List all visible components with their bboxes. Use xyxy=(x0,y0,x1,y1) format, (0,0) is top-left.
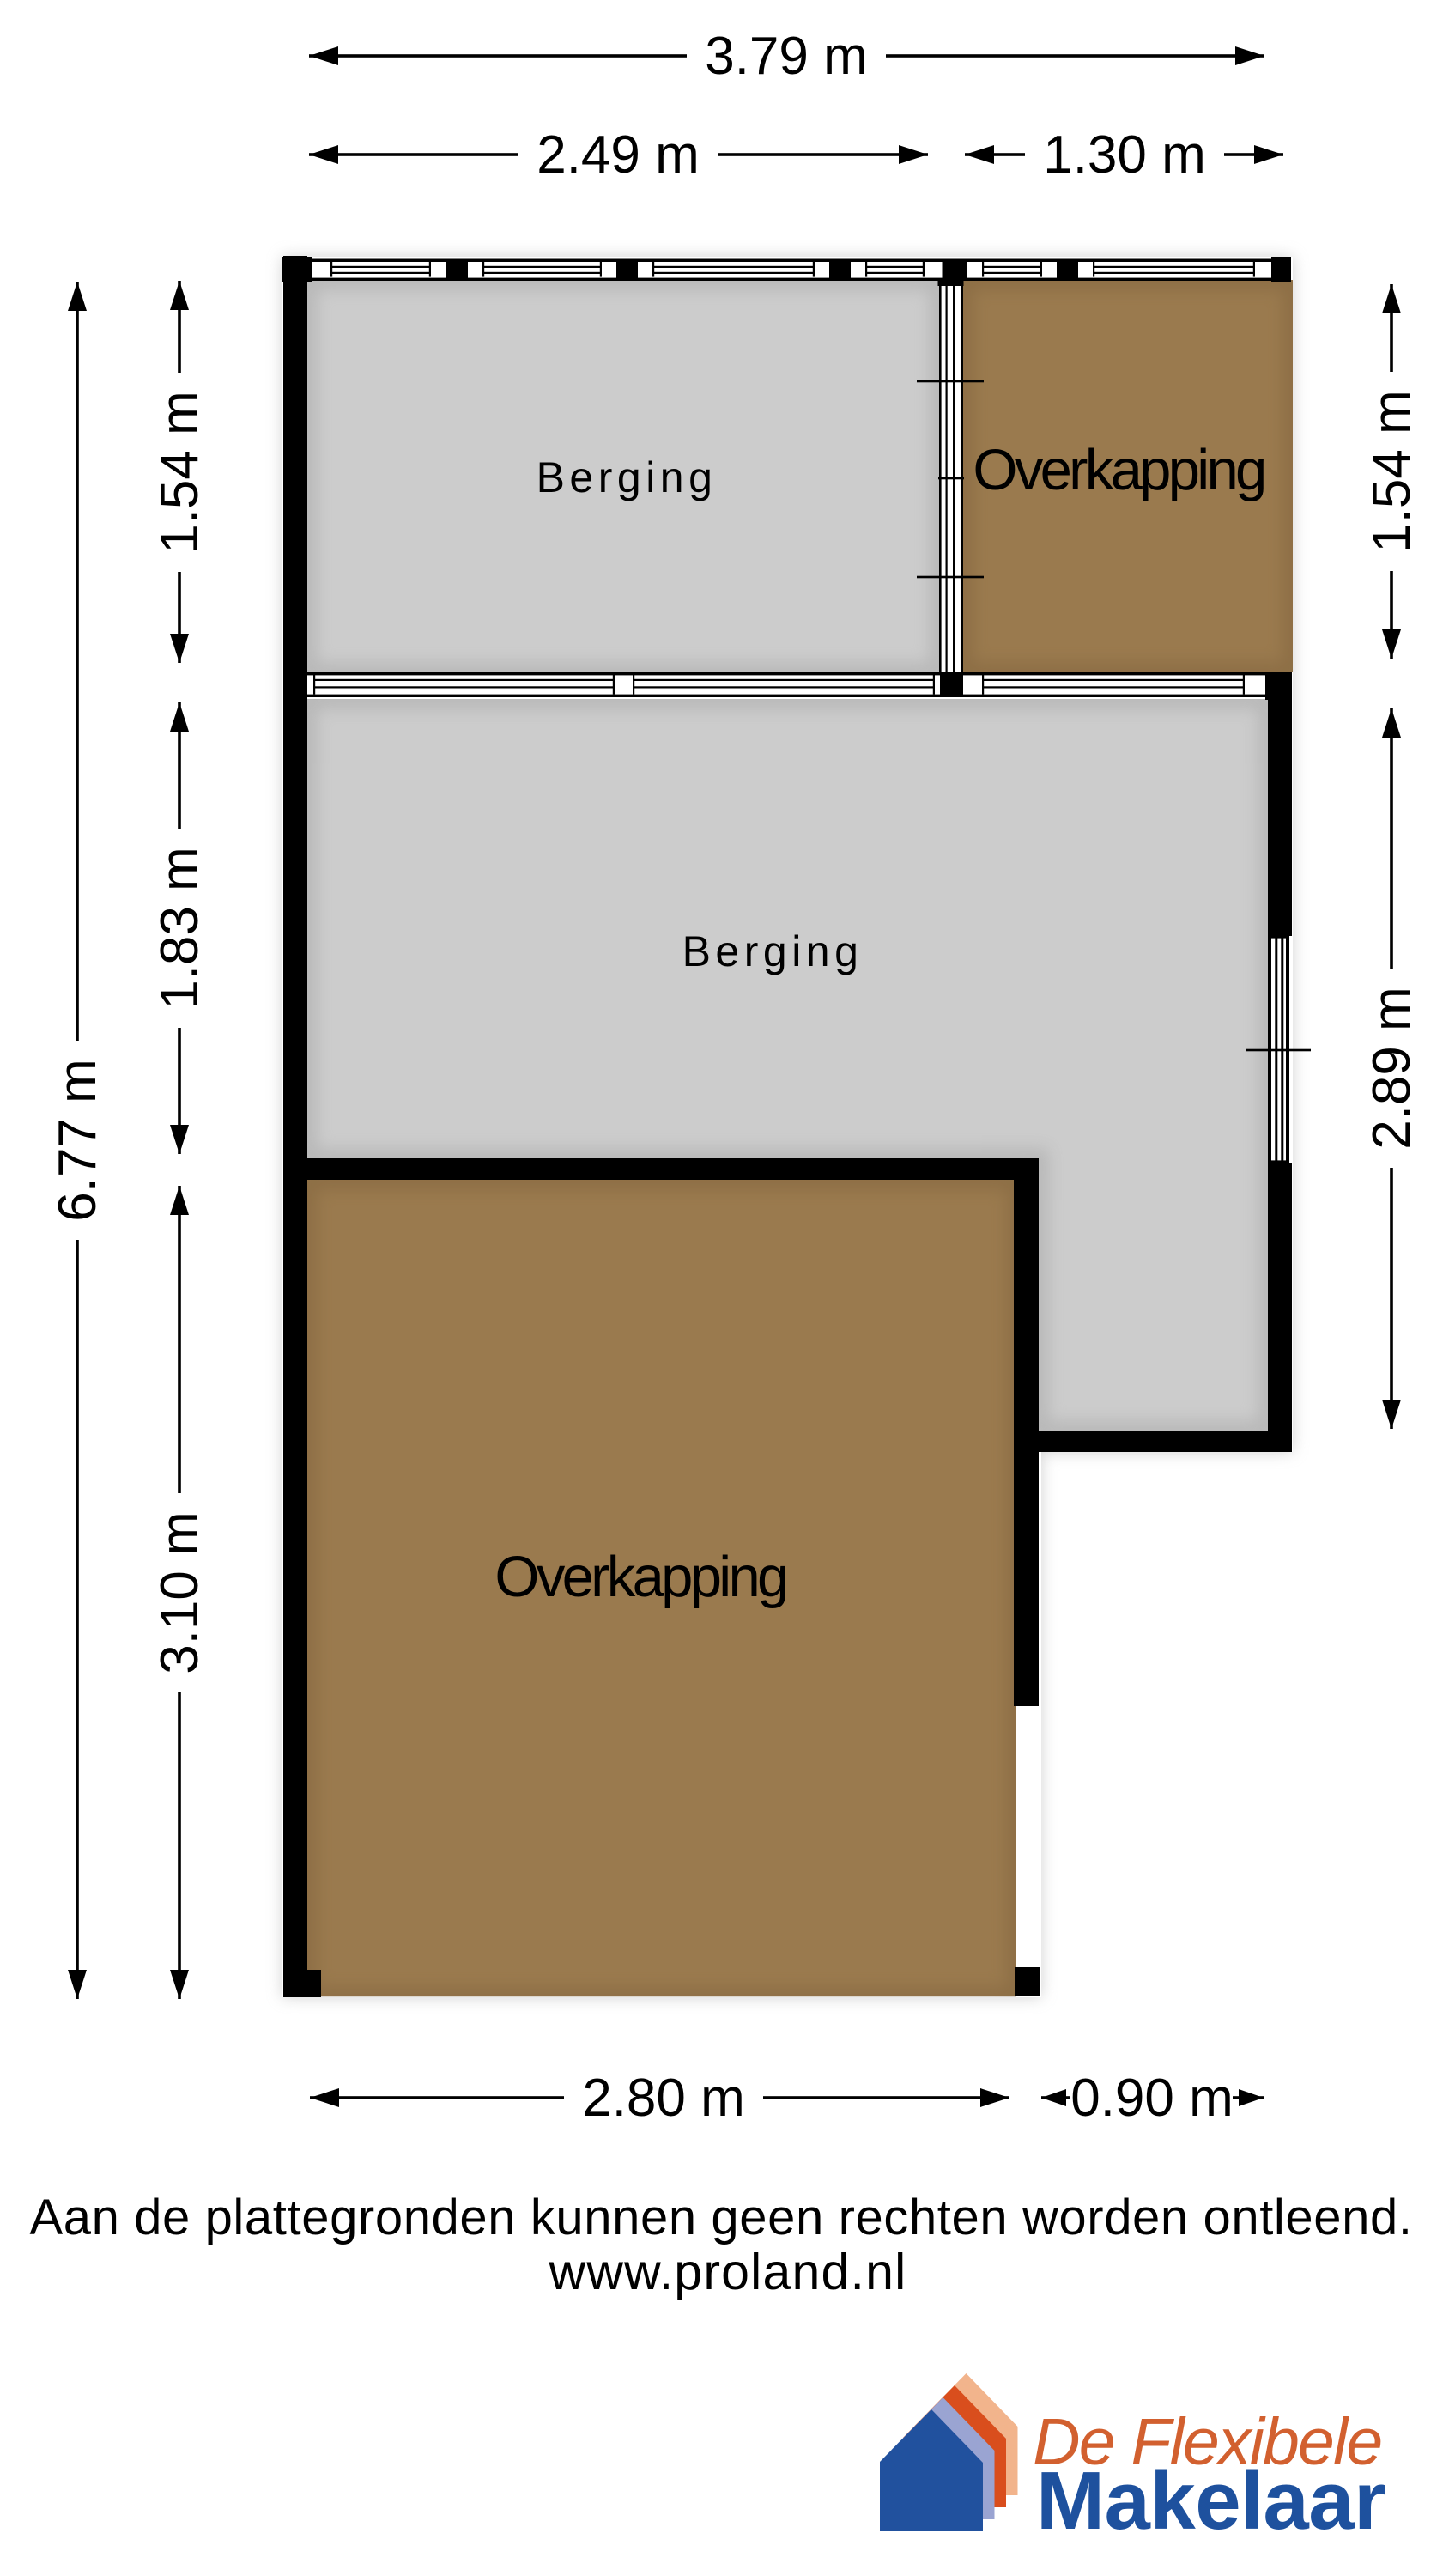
svg-text:3.79 m: 3.79 m xyxy=(705,27,868,86)
svg-text:Aan de plattegronden kunnen ge: Aan de plattegronden kunnen geen rechten… xyxy=(29,2190,1412,2245)
svg-text:www.proland.nl: www.proland.nl xyxy=(549,2244,907,2300)
svg-text:Overkapping: Overkapping xyxy=(494,1545,785,1609)
svg-text:Makelaar: Makelaar xyxy=(1036,2455,1385,2547)
svg-text:1.54 m: 1.54 m xyxy=(150,391,209,554)
svg-text:1.83 m: 1.83 m xyxy=(150,847,209,1010)
svg-text:Berging: Berging xyxy=(682,927,864,975)
svg-text:2.80 m: 2.80 m xyxy=(582,2069,745,2128)
svg-text:Overkapping: Overkapping xyxy=(973,438,1264,502)
svg-text:1.30 m: 1.30 m xyxy=(1043,125,1206,185)
svg-text:1.54 m: 1.54 m xyxy=(1362,390,1422,553)
svg-text:6.77 m: 6.77 m xyxy=(48,1059,107,1222)
svg-text:2.89 m: 2.89 m xyxy=(1362,987,1422,1150)
svg-text:2.49 m: 2.49 m xyxy=(537,125,700,185)
svg-text:Berging: Berging xyxy=(537,453,718,501)
svg-text:3.10 m: 3.10 m xyxy=(150,1511,209,1674)
svg-text:0.90 m: 0.90 m xyxy=(1070,2069,1234,2128)
